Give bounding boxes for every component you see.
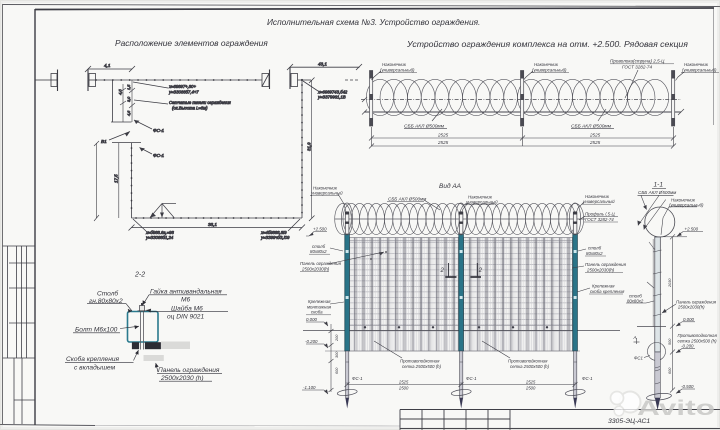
svg-text:-0.200: -0.200 [681, 344, 694, 349]
svg-text:Панель ограждения: Панель ограждения [300, 261, 342, 266]
svg-text:2-2: 2-2 [134, 272, 145, 279]
svg-text:4,6: 4,6 [127, 110, 131, 116]
svg-text:Крепежная: Крепежная [308, 299, 331, 304]
svg-text:y=ЗЗ99чбЗ,!09: y=ЗЗ99чбЗ,!09 [260, 235, 290, 240]
svg-text:В1: В1 [101, 139, 107, 144]
svg-text:Сетчатые панели ограждения: Сетчатые панели ограждения [169, 100, 232, 105]
svg-text:y=ЗЗ79961,1В: y=ЗЗ79961,1В [317, 95, 346, 100]
svg-text:600: 600 [668, 367, 672, 374]
svg-text:ФС1: ФС1 [634, 356, 644, 361]
svg-text:-0.500: -0.500 [681, 384, 694, 389]
svg-text:(универсальный): (универсальный) [682, 68, 717, 73]
svg-text:Профиль /,5-Ц: Профиль /,5-Ц [585, 212, 616, 217]
svg-text:СББ АКЛ Ø500мм: СББ АКЛ Ø500мм [388, 197, 427, 202]
svg-text:ГОСТ 3282-74: ГОСТ 3282-74 [585, 217, 614, 222]
svg-text:универсальный: универсальный [582, 199, 615, 204]
svg-text:2500: 2500 [525, 386, 536, 391]
svg-text:1,5: 1,5 [127, 84, 131, 90]
svg-text:2525: 2525 [437, 133, 449, 138]
svg-text:столб: столб [588, 246, 602, 251]
svg-text:ФС-1: ФС-1 [153, 128, 164, 133]
svg-text:Проволока(струна) 2,5-Ц: Проволока(струна) 2,5-Ц [610, 59, 665, 64]
svg-text:2525: 2525 [589, 133, 601, 138]
svg-text:Устройство ограждения комплекс: Устройство ограждения комплекса на отм. … [406, 39, 688, 49]
svg-text:17,5: 17,5 [114, 174, 119, 183]
svg-text:Панель ограждения: Панель ограждения [158, 366, 220, 374]
svg-text:Противоподкопная: Противоподкопная [508, 359, 548, 364]
svg-text:Панель ограждения: Панель ограждения [585, 262, 627, 267]
svg-text:универсальный: универсальный [465, 200, 498, 205]
svg-text:2: 2 [478, 268, 483, 274]
svg-text:ФС-1: ФС-1 [582, 376, 593, 381]
svg-text:ФС-1: ФС-1 [352, 376, 363, 381]
svg-text:Исполнительная схема №3. Устр: Исполнительная схема №3. Устройство огра… [267, 17, 480, 27]
svg-text:(универсальный): (универсальный) [380, 68, 415, 73]
svg-text:2030: 2030 [668, 278, 672, 288]
svg-text:Болт М6х100: Болт М6х100 [75, 326, 118, 333]
svg-text:80х80х2: 80х80х2 [627, 298, 644, 303]
svg-text:Avito: Avito [637, 397, 715, 420]
svg-text:2525: 2525 [525, 380, 536, 385]
svg-text:(универсальный): (универсальный) [669, 203, 704, 208]
svg-text:2525: 2525 [398, 380, 409, 385]
svg-text:универсальный: универсальный [310, 191, 343, 196]
svg-text:2500х2030(h): 2500х2030(h) [586, 267, 615, 272]
svg-text:+2.500: +2.500 [313, 227, 327, 232]
svg-text:y=ЗЗ088б1,24: y=ЗЗ088б1,24 [145, 235, 174, 240]
svg-text:38,1: 38,1 [208, 222, 217, 227]
svg-text:Крепежная: Крепежная [592, 284, 615, 289]
svg-text:Противоподкопная: Противоподкопная [678, 333, 718, 338]
svg-text:СББ АКЛ Ø500мм: СББ АКЛ Ø500мм [638, 190, 677, 195]
svg-text:4,1: 4,1 [104, 63, 111, 68]
svg-text:Гайка антивандальная: Гайка антивандальная [150, 288, 222, 296]
svg-text:500: 500 [668, 338, 672, 345]
svg-text:2525: 2525 [437, 140, 449, 145]
svg-text:ГОСТ 3282-74: ГОСТ 3282-74 [622, 65, 652, 70]
svg-text:x=69897+,80+: x=69897+,80+ [168, 84, 196, 89]
svg-text:200: 200 [335, 334, 339, 342]
svg-text:80х80х2: 80х80х2 [586, 251, 603, 256]
svg-text:Столб: Столб [97, 290, 118, 298]
svg-text:Противоподкопная: Противоподкопная [400, 359, 440, 364]
svg-text:300: 300 [335, 351, 339, 358]
svg-text:ФС-1: ФС-1 [466, 376, 477, 381]
svg-text:сетка 2500х500 (h): сетка 2500х500 (h) [402, 364, 442, 369]
svg-text:скоба: скоба [311, 310, 323, 315]
svg-text:(универсальный): (универсальный) [532, 68, 567, 73]
svg-text:с вкладышем: с вкладышем [74, 363, 116, 371]
svg-text:-0.200: -0.200 [305, 339, 318, 344]
svg-text:М6: М6 [181, 296, 190, 303]
svg-text:ФС-1: ФС-1 [153, 153, 164, 158]
svg-text:монтажная: монтажная [307, 304, 332, 309]
svg-text:80х80х2: 80х80х2 [310, 249, 327, 254]
svg-text:2: 2 [440, 268, 445, 274]
svg-text:43,1: 43,1 [318, 62, 327, 67]
svg-text:(ок.Высота L=8м): (ок.Высота L=8м) [172, 106, 208, 111]
svg-text:2500х2030(h): 2500х2030(h) [301, 266, 330, 271]
svg-text:2500х2030 (h): 2500х2030 (h) [160, 375, 204, 382]
svg-text:31,9: 31,9 [307, 142, 312, 151]
svg-text:Шайба М6: Шайба М6 [171, 304, 203, 312]
svg-text:2500: 2500 [398, 386, 409, 391]
svg-text:3,0: 3,0 [127, 96, 131, 102]
svg-text:сетка 2500х500 (h): сетка 2500х500 (h) [510, 364, 550, 369]
svg-text:СББ АКЛ Ø500мм: СББ АКЛ Ø500мм [571, 124, 612, 130]
svg-text:гн.80х80х2: гн.80х80х2 [89, 298, 123, 305]
svg-text:0.000: 0.000 [306, 317, 318, 322]
svg-text:Наконечник: Наконечник [684, 62, 709, 67]
svg-text:Вид АА: Вид АА [439, 182, 461, 190]
svg-text:Наконечник: Наконечник [534, 62, 559, 67]
svg-text:Скоба крепления: Скоба крепления [66, 355, 120, 363]
svg-text:Расположение элементов огражде: Расположение элементов ограждения [115, 38, 268, 48]
svg-text:А: А [633, 335, 637, 340]
svg-text:2525: 2525 [589, 140, 601, 145]
svg-text:-1.100: -1.100 [303, 385, 316, 390]
svg-text:+2.500: +2.500 [685, 227, 699, 232]
svg-text:600: 600 [335, 367, 339, 374]
svg-text:0.000: 0.000 [683, 317, 695, 322]
svg-text:2500х2030(h): 2500х2030(h) [677, 305, 705, 310]
svg-text:скоба крепления: скоба крепления [590, 289, 625, 294]
svg-text:Наконечник: Наконечник [382, 62, 407, 67]
svg-text:y=ЗЗ088б7,4+7: y=ЗЗ088б7,4+7 [168, 90, 199, 95]
svg-text:4,5: 4,5 [118, 89, 123, 95]
svg-text:СББ АКЛ Ø500мм: СББ АКЛ Ø500мм [404, 124, 445, 130]
svg-text:1-1: 1-1 [654, 182, 664, 189]
svg-text:оц DIN 9021: оц DIN 9021 [167, 314, 204, 321]
